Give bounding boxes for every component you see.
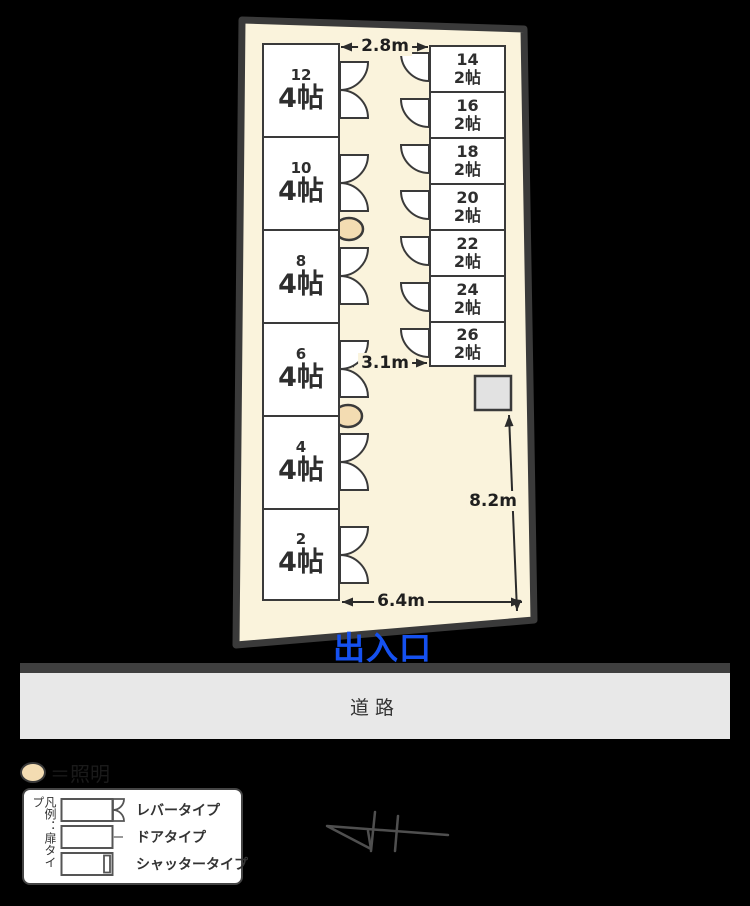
storage-unit-6: 6 4帖 bbox=[262, 322, 340, 417]
legend-row-lever: レバータイプ bbox=[60, 796, 248, 823]
legend-row-shutter: シャッタータイプ bbox=[60, 850, 248, 877]
storage-unit-22: 22 2帖 bbox=[429, 229, 506, 277]
unit-size: 2帖 bbox=[454, 115, 481, 133]
storage-unit-24: 24 2帖 bbox=[429, 275, 506, 323]
unit-number: 12 bbox=[291, 67, 312, 84]
unit-number: 6 bbox=[296, 346, 306, 363]
dimension-top-width: 2.8m bbox=[358, 36, 412, 56]
shutter-type-icon bbox=[60, 850, 128, 878]
unit-size: 4帖 bbox=[278, 456, 324, 486]
unit-size: 2帖 bbox=[454, 299, 481, 317]
storage-unit-26: 26 2帖 bbox=[429, 321, 506, 367]
entrance-label: 出入口 bbox=[310, 623, 455, 669]
unit-number: 8 bbox=[296, 253, 306, 270]
legend-label: シャッタータイプ bbox=[136, 854, 248, 874]
storage-unit-8: 8 4帖 bbox=[262, 229, 340, 324]
dimension-right-height: 8.2m bbox=[466, 491, 520, 511]
legend-label: レバータイプ bbox=[136, 800, 220, 820]
unit-number: 14 bbox=[456, 51, 478, 69]
storage-unit-10: 10 4帖 bbox=[262, 136, 340, 231]
legend-label: ドアタイプ bbox=[136, 827, 206, 847]
dimension-bottom-width: 6.4m bbox=[374, 591, 428, 611]
unit-number: 26 bbox=[456, 326, 478, 344]
storage-unit-12: 12 4帖 bbox=[262, 43, 340, 138]
pillar-square bbox=[475, 376, 511, 410]
lever-type-icon bbox=[60, 796, 128, 824]
door-type-icon bbox=[60, 823, 128, 851]
north-arrow-icon bbox=[327, 812, 448, 851]
unit-size: 4帖 bbox=[278, 363, 324, 393]
unit-size: 4帖 bbox=[278, 548, 324, 578]
unit-size: 2帖 bbox=[454, 161, 481, 179]
door-type-legend: 凡例：扉タイプ レバータイプ ドアタイプ bbox=[22, 788, 243, 885]
light-icon bbox=[20, 762, 46, 783]
unit-number: 18 bbox=[456, 143, 478, 161]
storage-unit-16: 16 2帖 bbox=[429, 91, 506, 139]
unit-number: 22 bbox=[456, 235, 478, 253]
dimension-middle-width: 3.1m bbox=[358, 353, 412, 373]
storage-unit-4: 4 4帖 bbox=[262, 415, 340, 510]
storage-unit-2: 2 4帖 bbox=[262, 508, 340, 601]
unit-number: 4 bbox=[296, 439, 306, 456]
legend-rows: レバータイプ ドアタイプ シャッタータイプ bbox=[60, 796, 248, 877]
unit-number: 10 bbox=[291, 160, 312, 177]
legend-row-door: ドアタイプ bbox=[60, 823, 248, 850]
unit-size: 2帖 bbox=[454, 207, 481, 225]
unit-number: 20 bbox=[456, 189, 478, 207]
unit-size: 2帖 bbox=[454, 253, 481, 271]
site-plan: 12 4帖 10 4帖 8 4帖 6 4帖 4 4帖 2 4帖 14 2帖 16… bbox=[0, 0, 750, 906]
road-label: 道路 bbox=[350, 693, 400, 720]
unit-size: 2帖 bbox=[454, 69, 481, 87]
unit-size: 4帖 bbox=[278, 270, 324, 300]
storage-unit-18: 18 2帖 bbox=[429, 137, 506, 185]
unit-size: 2帖 bbox=[454, 344, 481, 362]
unit-number: 16 bbox=[456, 97, 478, 115]
lighting-legend-label: ＝照明 bbox=[50, 758, 110, 787]
unit-number: 24 bbox=[456, 281, 478, 299]
unit-size: 4帖 bbox=[278, 84, 324, 114]
road-band: 道路 bbox=[20, 663, 730, 739]
unit-number: 2 bbox=[296, 531, 306, 548]
plan-geometry bbox=[0, 0, 750, 906]
storage-unit-20: 20 2帖 bbox=[429, 183, 506, 231]
unit-size: 4帖 bbox=[278, 177, 324, 207]
storage-unit-14: 14 2帖 bbox=[429, 45, 506, 93]
legend-title: 凡例：扉タイプ bbox=[32, 796, 56, 877]
lighting-legend: ＝照明 bbox=[20, 758, 110, 787]
